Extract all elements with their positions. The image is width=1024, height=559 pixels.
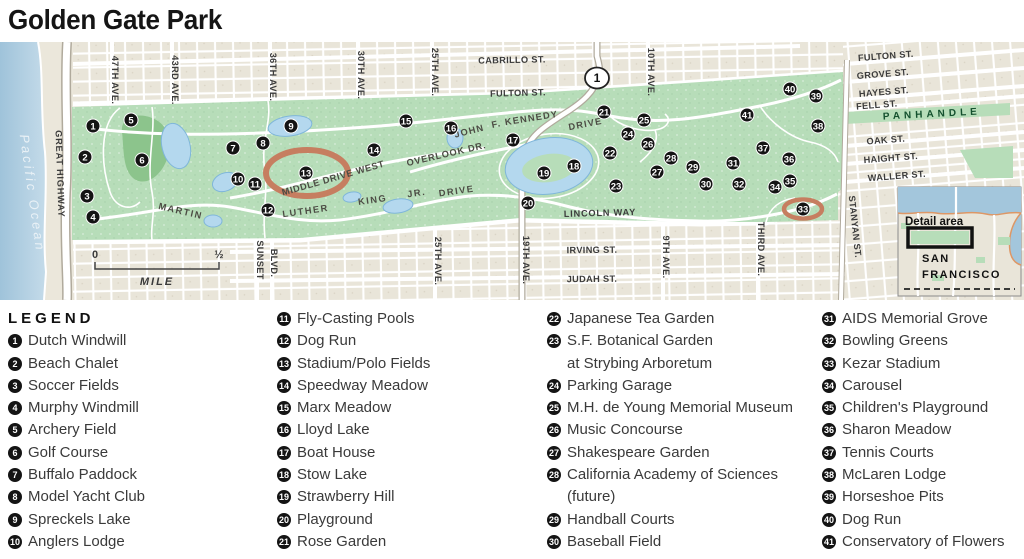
map-label-lincoln-way: LINCOLN WAY	[564, 207, 637, 219]
legend-item-label: Fly-Casting Pools	[297, 308, 415, 330]
marker-number: 12	[263, 205, 274, 216]
map-marker-8: 8	[256, 136, 270, 150]
marker-number: 38	[813, 121, 824, 132]
map-label-fulton-st: FULTON ST.	[490, 87, 546, 98]
legend-item-label: S.F. Botanical Gardenat Strybing Arboret…	[567, 330, 713, 375]
marker-number: 21	[599, 107, 610, 118]
legend-item-5: 5Archery Field	[8, 419, 145, 441]
legend-item-number: 11	[277, 312, 291, 326]
marker-number: 39	[811, 91, 822, 102]
legend-item-40: 40Dog Run	[822, 509, 1005, 531]
legend-item-label: M.H. de Young Memorial Museum	[567, 397, 793, 419]
marker-number: 17	[508, 135, 519, 146]
legend-item-label: Handball Courts	[567, 509, 675, 531]
legend-item-label: Boat House	[297, 442, 375, 464]
marker-number: 26	[643, 139, 654, 150]
legend-item-label: Rose Garden	[297, 531, 386, 553]
legend-item-number: 16	[277, 423, 291, 437]
legend-item-number: 14	[277, 379, 291, 393]
legend-item-label: Sharon Meadow	[842, 419, 951, 441]
marker-number: 20	[523, 198, 534, 209]
legend-item-32: 32Bowling Greens	[822, 330, 1005, 352]
marker-number: 3	[84, 191, 89, 202]
map-marker-3: 3	[80, 189, 94, 203]
map-marker-31: 31	[726, 156, 740, 170]
scale-zero: 0	[92, 249, 98, 261]
map-marker-27: 27	[650, 165, 664, 179]
marker-number: 16	[446, 123, 457, 134]
legend-item-35: 35Children's Playground	[822, 397, 1005, 419]
legend-item-number: 27	[547, 446, 561, 460]
legend-item-number: 40	[822, 513, 836, 527]
map-marker-26: 26	[641, 137, 655, 151]
marker-number: 34	[770, 182, 781, 193]
marker-number: 8	[260, 138, 265, 149]
legend-item-number: 26	[547, 423, 561, 437]
legend-item-9: 9Spreckels Lake	[8, 509, 145, 531]
inset-park-strip	[911, 231, 969, 244]
map-marker-17: 17	[506, 133, 520, 147]
map-marker-6: 6	[135, 153, 149, 167]
legend-item-number: 13	[277, 357, 291, 371]
detail-inset: Detail area SAN FRANCISCO	[898, 187, 1021, 296]
legend-item-number: 9	[8, 513, 22, 527]
legend-item-label: Dog Run	[297, 330, 356, 352]
legend-item-36: 36Sharon Meadow	[822, 419, 1005, 441]
map-marker-33: 33	[796, 202, 810, 216]
legend: LEGEND1Dutch Windwill2Beach Chalet3Socce…	[0, 300, 1024, 559]
legend-item-label: Dutch Windwill	[28, 330, 126, 352]
legend-item-number: 33	[822, 357, 836, 371]
marker-number: 10	[233, 174, 244, 185]
legend-item-label: Buffalo Paddock	[28, 464, 137, 486]
map-marker-35: 35	[783, 174, 797, 188]
marker-number: 1	[90, 121, 96, 132]
legend-item-number: 31	[822, 312, 836, 326]
map-marker-13: 13	[299, 166, 313, 180]
legend-item-number: 1	[8, 334, 22, 348]
legend-item-21: 21Rose Garden	[277, 531, 430, 553]
map-marker-24: 24	[621, 127, 635, 141]
scale-half: ½	[214, 249, 223, 261]
map-canvas: 1 0 ½ MILE Detail area SAN FRANCISCO CAB…	[0, 42, 1024, 300]
legend-item-28: 28California Academy of Sciences(future)	[547, 464, 793, 509]
map-marker-37: 37	[756, 141, 770, 155]
marker-number: 41	[742, 110, 753, 121]
legend-item-label: Archery Field	[28, 419, 116, 441]
legend-item-33: 33Kezar Stadium	[822, 353, 1005, 375]
legend-item-label: Shakespeare Garden	[567, 442, 710, 464]
legend-item-label: Murphy Windmill	[28, 397, 139, 419]
map-label-blvd: BLVD.	[269, 249, 279, 278]
legend-item-number: 3	[8, 379, 22, 393]
highway-1-shield: 1	[585, 68, 609, 89]
legend-item-label: Kezar Stadium	[842, 353, 940, 375]
legend-item-number: 5	[8, 423, 22, 437]
scale-unit: MILE	[140, 276, 174, 288]
legend-item-number: 4	[8, 401, 22, 415]
map-marker-15: 15	[399, 114, 413, 128]
marker-number: 33	[798, 204, 809, 215]
legend-item-number: 28	[547, 468, 561, 482]
legend-item-label: Anglers Lodge	[28, 531, 125, 553]
legend-column-4: 31AIDS Memorial Grove32Bowling Greens33K…	[822, 308, 1005, 553]
marker-number: 18	[569, 161, 580, 172]
legend-item-number: 30	[547, 535, 561, 549]
legend-item-2: 2Beach Chalet	[8, 353, 145, 375]
legend-item-31: 31AIDS Memorial Grove	[822, 308, 1005, 330]
legend-item-label: Conservatory of Flowers	[842, 531, 1005, 553]
map-label-10th-ave: 10TH AVE.	[646, 48, 656, 97]
legend-item-label: Golf Course	[28, 442, 108, 464]
legend-item-10: 10Anglers Lodge	[8, 531, 145, 553]
legend-item-label: Lloyd Lake	[297, 419, 370, 441]
legend-item-15: 15Marx Meadow	[277, 397, 430, 419]
map-label-19th-ave: 19TH AVE.	[521, 236, 531, 285]
map-label-9th-ave: 9TH AVE.	[661, 235, 671, 278]
marker-number: 37	[758, 143, 769, 154]
legend-item-number: 15	[277, 401, 291, 415]
legend-item-number: 10	[8, 535, 22, 549]
legend-item-label: Spreckels Lake	[28, 509, 131, 531]
marker-number: 32	[734, 179, 745, 190]
inset-city-line1: SAN	[922, 253, 950, 265]
legend-item-number: 36	[822, 423, 836, 437]
legend-item-label: Baseball Field	[567, 531, 661, 553]
marker-number: 23	[611, 181, 622, 192]
marker-number: 35	[785, 176, 796, 187]
legend-item-22: 22Japanese Tea Garden	[547, 308, 793, 330]
map-label-25th-ave: 25TH AVE.	[430, 48, 440, 97]
legend-item-number: 17	[277, 446, 291, 460]
legend-item-25: 25M.H. de Young Memorial Museum	[547, 397, 793, 419]
legend-item-label: Strawberry Hill	[297, 486, 395, 508]
detail-area-label: Detail area	[905, 216, 964, 228]
legend-item-number: 19	[277, 490, 291, 504]
legend-item-37: 37Tennis Courts	[822, 442, 1005, 464]
legend-item-4: 4Murphy Windmill	[8, 397, 145, 419]
legend-item-label: Marx Meadow	[297, 397, 391, 419]
map-marker-10: 10	[231, 172, 245, 186]
legend-item-number: 34	[822, 379, 836, 393]
legend-column-2: 11Fly-Casting Pools12Dog Run13Stadium/Po…	[277, 308, 430, 553]
map-marker-41: 41	[740, 108, 754, 122]
legend-item-8: 8Model Yacht Club	[8, 486, 145, 508]
marker-number: 40	[785, 84, 796, 95]
legend-item-38: 38McLaren Lodge	[822, 464, 1005, 486]
legend-item-label: Model Yacht Club	[28, 486, 145, 508]
map-label-judah-st: JUDAH ST.	[567, 274, 618, 284]
map-marker-19: 19	[537, 166, 551, 180]
legend-item-label: Bowling Greens	[842, 330, 948, 352]
legend-item-41: 41Conservatory of Flowers	[822, 531, 1005, 553]
marker-number: 4	[90, 212, 96, 223]
legend-item-label: Stadium/Polo Fields	[297, 353, 430, 375]
legend-item-number: 29	[547, 513, 561, 527]
legend-item-17: 17Boat House	[277, 442, 430, 464]
legend-item-30: 30Baseball Field	[547, 531, 793, 553]
marker-number: 19	[539, 168, 550, 179]
marker-number: 5	[128, 115, 134, 126]
legend-item-number: 35	[822, 401, 836, 415]
legend-item-number: 38	[822, 468, 836, 482]
marker-number: 9	[288, 121, 293, 132]
marker-number: 2	[82, 152, 87, 163]
marker-number: 36	[784, 154, 795, 165]
map-marker-34: 34	[768, 180, 782, 194]
legend-item-number: 12	[277, 334, 291, 348]
legend-item-label: Japanese Tea Garden	[567, 308, 714, 330]
map-label-36th-ave: 36TH AVE.	[268, 53, 278, 102]
legend-item-20: 20Playground	[277, 509, 430, 531]
legend-item-26: 26Music Concourse	[547, 419, 793, 441]
map-marker-2: 2	[78, 150, 92, 164]
legend-item-label: Tennis Courts	[842, 442, 934, 464]
map-marker-23: 23	[609, 179, 623, 193]
inset-city-line2: FRANCISCO	[922, 269, 1001, 281]
legend-item-number: 32	[822, 334, 836, 348]
legend-item-number: 7	[8, 468, 22, 482]
legend-item-39: 39Horseshoe Pits	[822, 486, 1005, 508]
legend-item-number: 21	[277, 535, 291, 549]
highway-1-shield-number: 1	[594, 71, 601, 85]
map-marker-11: 11	[248, 177, 262, 191]
legend-item-3: 3Soccer Fields	[8, 375, 145, 397]
map-label-sunset: SUNSET	[255, 240, 265, 279]
legend-item-11: 11Fly-Casting Pools	[277, 308, 430, 330]
map-marker-7: 7	[226, 141, 240, 155]
page-title: Golden Gate Park	[8, 4, 222, 36]
legend-item-number: 6	[8, 446, 22, 460]
map-marker-16: 16	[444, 121, 458, 135]
map-label-25th-ave: 25TH AVE.	[433, 237, 443, 286]
marker-number: 7	[230, 143, 235, 154]
legend-column-3: 22Japanese Tea Garden23S.F. Botanical Ga…	[547, 308, 793, 553]
map-marker-30: 30	[699, 177, 713, 191]
legend-item-number: 39	[822, 490, 836, 504]
marker-number: 13	[301, 168, 312, 179]
legend-item-14: 14Speedway Meadow	[277, 375, 430, 397]
legend-column-1: LEGEND1Dutch Windwill2Beach Chalet3Socce…	[8, 308, 145, 553]
legend-item-number: 24	[547, 379, 561, 393]
legend-item-6: 6Golf Course	[8, 442, 145, 464]
legend-header: LEGEND	[8, 308, 145, 330]
legend-item-number: 25	[547, 401, 561, 415]
legend-item-number: 23	[547, 334, 561, 348]
marker-number: 24	[623, 129, 634, 140]
legend-item-16: 16Lloyd Lake	[277, 419, 430, 441]
map-marker-5: 5	[124, 113, 138, 127]
map-marker-21: 21	[597, 105, 611, 119]
marker-number: 28	[666, 153, 677, 164]
map-marker-29: 29	[686, 160, 700, 174]
legend-item-label: Beach Chalet	[28, 353, 118, 375]
legend-item-number: 41	[822, 535, 836, 549]
legend-item-label: AIDS Memorial Grove	[842, 308, 988, 330]
map-label-30th-ave: 30TH AVE.	[356, 51, 366, 100]
legend-item-18: 18Stow Lake	[277, 464, 430, 486]
legend-item-24: 24Parking Garage	[547, 375, 793, 397]
map-marker-40: 40	[783, 82, 797, 96]
legend-item-label: Soccer Fields	[28, 375, 119, 397]
legend-item-number: 18	[277, 468, 291, 482]
marker-number: 27	[652, 167, 663, 178]
legend-item-1: 1Dutch Windwill	[8, 330, 145, 352]
legend-item-label: McLaren Lodge	[842, 464, 946, 486]
legend-item-label: Children's Playground	[842, 397, 988, 419]
legend-item-label: Stow Lake	[297, 464, 367, 486]
legend-item-label: Speedway Meadow	[297, 375, 428, 397]
map-marker-12: 12	[261, 203, 275, 217]
legend-item-label: Parking Garage	[567, 375, 672, 397]
legend-item-13: 13Stadium/Polo Fields	[277, 353, 430, 375]
legend-item-19: 19Strawberry Hill	[277, 486, 430, 508]
map-marker-22: 22	[603, 146, 617, 160]
legend-item-number: 22	[547, 312, 561, 326]
legend-item-label: Music Concourse	[567, 419, 683, 441]
map-label-43rd-ave: 43RD AVE.	[170, 55, 180, 105]
park-map: 1 0 ½ MILE Detail area SAN FRANCISCO CAB…	[0, 42, 1024, 300]
legend-item-23: 23S.F. Botanical Gardenat Strybing Arbor…	[547, 330, 793, 375]
map-marker-4: 4	[86, 210, 100, 224]
map-marker-36: 36	[782, 152, 796, 166]
map-marker-20: 20	[521, 196, 535, 210]
map-label-f: F.	[491, 118, 503, 130]
map-marker-28: 28	[664, 151, 678, 165]
legend-item-label: California Academy of Sciences(future)	[567, 464, 778, 509]
map-marker-38: 38	[811, 119, 825, 133]
map-marker-25: 25	[637, 113, 651, 127]
marker-number: 15	[401, 116, 412, 127]
legend-item-label: Horseshoe Pits	[842, 486, 944, 508]
map-marker-1: 1	[86, 119, 100, 133]
legend-item-label: Carousel	[842, 375, 902, 397]
map-label-47th-ave: 47TH AVE.	[110, 56, 120, 105]
map-label-third-ave: THIRD AVE.	[756, 222, 766, 277]
marker-number: 11	[250, 179, 261, 190]
marker-number: 25	[639, 115, 650, 126]
legend-item-number: 2	[8, 357, 22, 371]
marker-number: 29	[688, 162, 699, 173]
map-label-cabrillo-st: CABRILLO ST.	[478, 54, 546, 65]
legend-item-number: 20	[277, 513, 291, 527]
map-marker-9: 9	[284, 119, 298, 133]
legend-item-34: 34Carousel	[822, 375, 1005, 397]
legend-item-12: 12Dog Run	[277, 330, 430, 352]
legend-item-number: 8	[8, 490, 22, 504]
legend-item-number: 37	[822, 446, 836, 460]
map-marker-39: 39	[809, 89, 823, 103]
map-marker-32: 32	[732, 177, 746, 191]
legend-item-27: 27Shakespeare Garden	[547, 442, 793, 464]
marker-number: 22	[605, 148, 616, 159]
marker-number: 30	[701, 179, 712, 190]
marker-number: 6	[139, 155, 144, 166]
legend-item-label: Playground	[297, 509, 373, 531]
legend-item-label: Dog Run	[842, 509, 901, 531]
map-marker-14: 14	[367, 143, 381, 157]
map-marker-18: 18	[567, 159, 581, 173]
marker-number: 14	[369, 145, 380, 156]
legend-item-29: 29Handball Courts	[547, 509, 793, 531]
map-label-irving-st: IRVING ST.	[567, 245, 618, 255]
legend-item-7: 7Buffalo Paddock	[8, 464, 145, 486]
marker-number: 31	[728, 158, 739, 169]
